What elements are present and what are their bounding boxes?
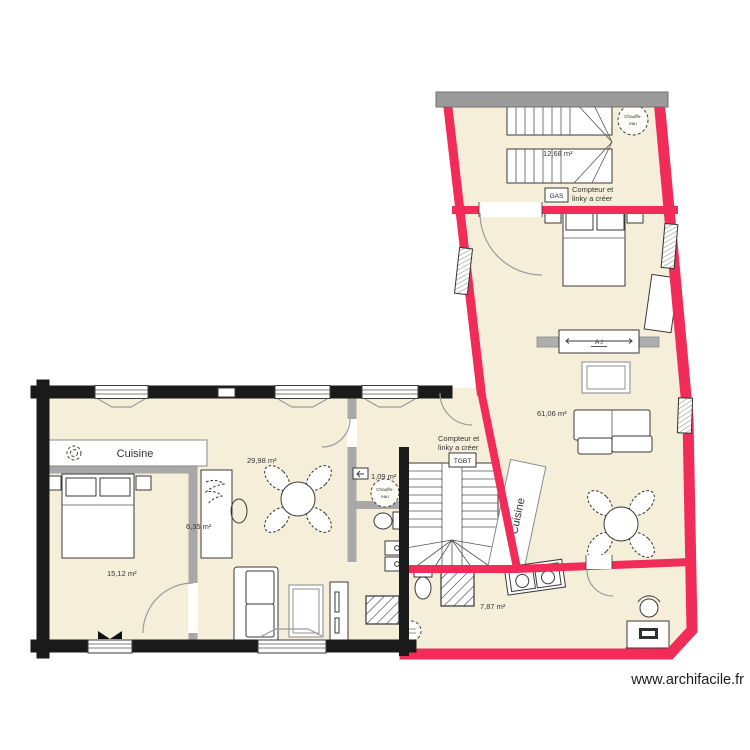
top-gray-wall xyxy=(436,92,668,107)
svg-text:eau: eau xyxy=(381,494,389,499)
wardrobe-left xyxy=(330,582,348,643)
area-label-bathroom: 7,87 m² xyxy=(480,602,506,611)
floor-plan-canvas: Cuisine Chau xyxy=(0,0,750,750)
svg-text:linky a créer: linky a créer xyxy=(438,443,479,452)
kitchen-left-label: Cuisine xyxy=(117,448,154,460)
area-label-living-room: 29,98 m² xyxy=(247,456,277,465)
svg-text:eau: eau xyxy=(629,121,637,126)
sliding-door-label: A.I xyxy=(595,339,603,346)
area-label-wc: 1,09 m² xyxy=(371,472,397,481)
staircase-center xyxy=(406,463,498,568)
tv-stand-right xyxy=(582,362,630,393)
vent-box xyxy=(218,388,235,397)
area-label-stair-room: 12,68 m² xyxy=(543,149,573,158)
svg-text:Chauffe-: Chauffe- xyxy=(624,114,642,119)
toilet-bathroom xyxy=(414,569,432,599)
meter-note-top: GAS Compteur et linky a créer xyxy=(545,185,614,203)
pillow xyxy=(66,478,96,496)
tgbt-box-label: TGBT xyxy=(454,458,471,465)
gas-box-label: GAS xyxy=(550,193,564,200)
pillow xyxy=(597,212,624,230)
pillow xyxy=(566,212,593,230)
nightstand xyxy=(136,476,151,490)
water-heater-circle-wc: Chauffe- eau xyxy=(371,479,399,507)
area-label-closet: 6,35 m² xyxy=(186,522,212,531)
shower-left xyxy=(366,596,399,624)
svg-text:Compteur et: Compteur et xyxy=(438,434,480,443)
svg-text:Chauffe-: Chauffe- xyxy=(376,487,394,492)
svg-text:linky a créer: linky a créer xyxy=(572,194,613,203)
corner-sofa xyxy=(574,410,652,454)
toilet-upper xyxy=(374,512,403,529)
shower-bathroom xyxy=(441,571,474,606)
svg-text:Compteur et: Compteur et xyxy=(572,185,614,194)
kitchen-counter-left: Cuisine xyxy=(48,440,207,466)
area-label-main-room: 61,06 m² xyxy=(537,409,567,418)
water-heater-circle-top: Chauffe- eau xyxy=(618,105,648,135)
floor-plan-page: Cuisine Chau xyxy=(0,0,750,750)
area-label-bedroom: 15,12 m² xyxy=(107,569,137,578)
pillow xyxy=(100,478,130,496)
watermark: www.archifacile.fr xyxy=(630,672,744,688)
window xyxy=(677,398,692,433)
